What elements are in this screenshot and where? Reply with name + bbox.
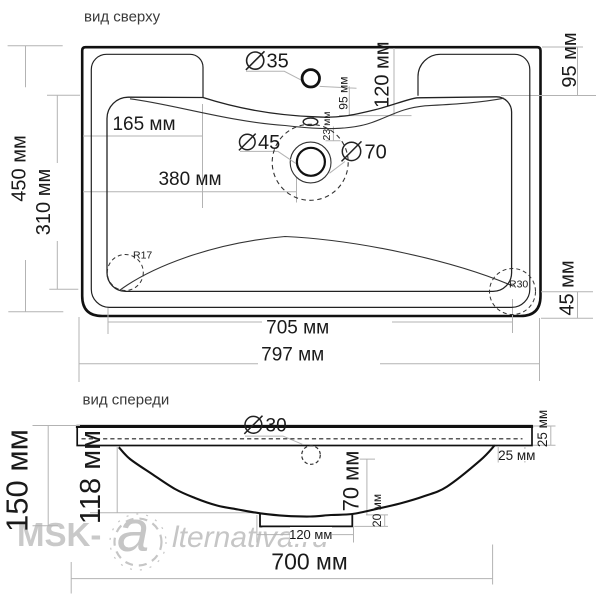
svg-text:45 мм: 45 мм	[557, 260, 579, 315]
svg-text:165 мм: 165 мм	[112, 114, 175, 135]
svg-text:700 мм: 700 мм	[271, 548, 347, 574]
svg-text:95 мм: 95 мм	[336, 77, 350, 110]
svg-text:45: 45	[258, 132, 280, 154]
svg-text:вид спереди: вид спереди	[83, 392, 170, 409]
svg-text:120 мм: 120 мм	[371, 41, 393, 107]
svg-text:310 мм: 310 мм	[33, 169, 55, 235]
svg-text:95 мм: 95 мм	[559, 32, 581, 87]
svg-text:797 мм: 797 мм	[261, 344, 324, 365]
svg-text:30: 30	[266, 415, 287, 436]
svg-text:R17: R17	[133, 250, 152, 262]
svg-text:20 мм: 20 мм	[370, 494, 384, 527]
svg-text:25 мм: 25 мм	[535, 410, 550, 447]
svg-text:450 мм: 450 мм	[9, 135, 31, 201]
svg-text:705 мм: 705 мм	[266, 318, 329, 339]
svg-text:a: a	[117, 499, 149, 564]
svg-text:380 мм: 380 мм	[158, 169, 221, 190]
svg-text:23 мм: 23 мм	[321, 111, 333, 140]
svg-text:118 мм: 118 мм	[75, 430, 107, 524]
svg-text:вид сверху: вид сверху	[84, 9, 161, 26]
svg-text:25 мм: 25 мм	[498, 448, 535, 463]
svg-text:70 мм: 70 мм	[338, 451, 363, 512]
svg-text:150 мм: 150 мм	[0, 429, 35, 532]
svg-text:35: 35	[267, 50, 289, 72]
svg-text:70: 70	[365, 142, 387, 164]
svg-text:R30: R30	[509, 279, 528, 291]
svg-text:120 мм: 120 мм	[289, 527, 332, 542]
